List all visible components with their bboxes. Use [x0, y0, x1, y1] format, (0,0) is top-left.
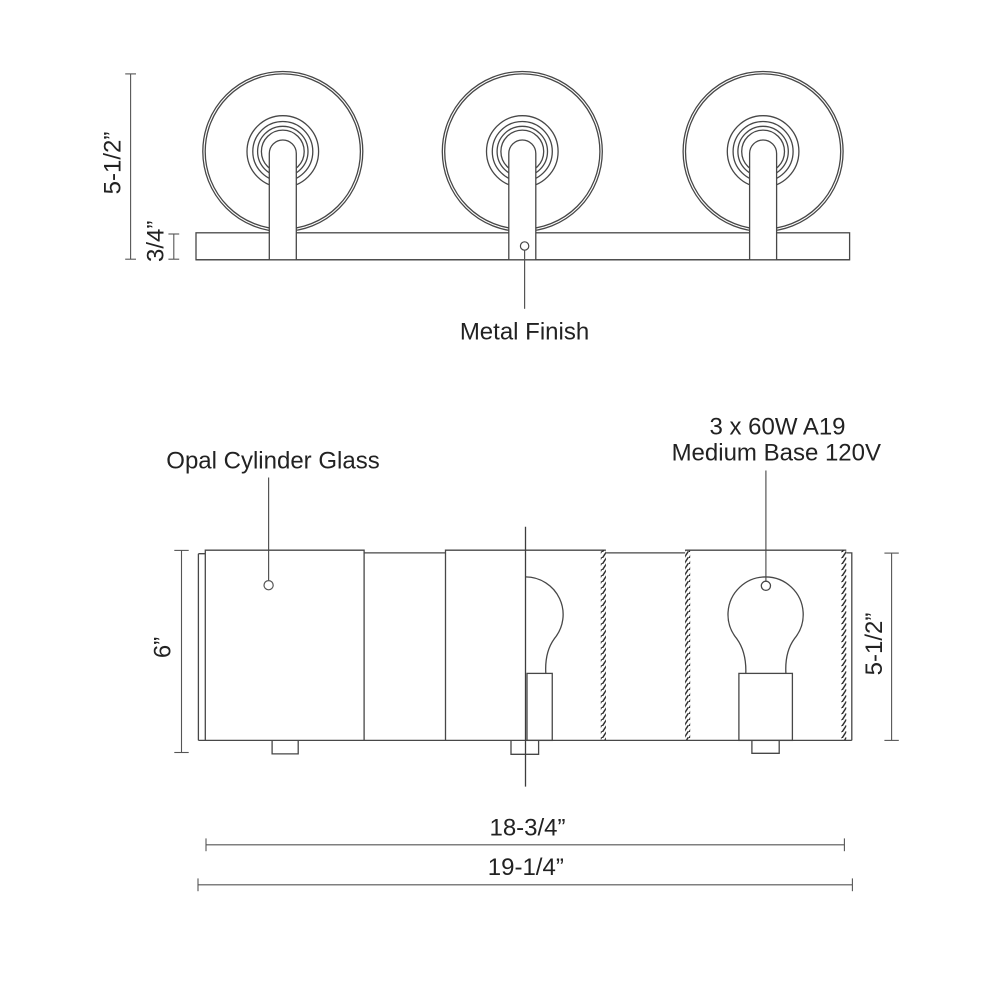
svg-text:Metal Finish: Metal Finish [460, 318, 589, 345]
svg-text:18-3/4”: 18-3/4” [489, 815, 565, 842]
svg-text:3/4”: 3/4” [142, 221, 169, 262]
svg-text:6”: 6” [150, 637, 177, 658]
svg-text:5-1/2”: 5-1/2” [861, 613, 888, 676]
svg-text:Medium Base 120V: Medium Base 120V [672, 440, 881, 467]
svg-text:Opal Cylinder Glass: Opal Cylinder Glass [166, 447, 379, 474]
svg-text:3 x 60W A19: 3 x 60W A19 [709, 414, 845, 441]
svg-text:5-1/2”: 5-1/2” [100, 132, 127, 195]
svg-text:19-1/4”: 19-1/4” [488, 854, 564, 881]
